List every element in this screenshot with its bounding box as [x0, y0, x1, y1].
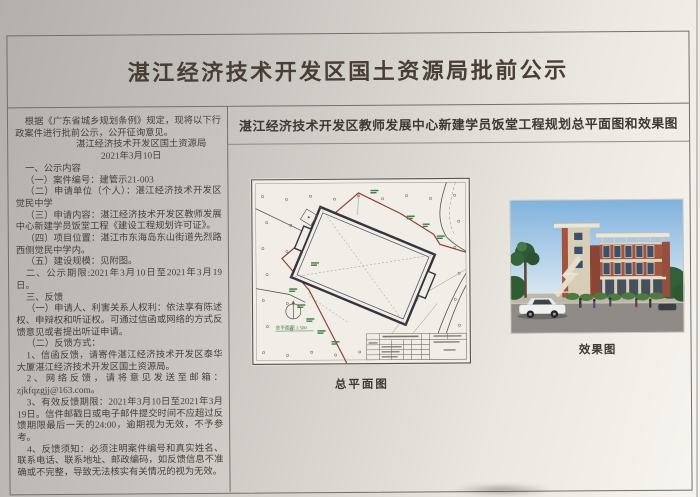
notice-paragraph: （三）申请内容：湛江经济技术开发区教师发展中心新建学员饭堂工程《建设工程规划许可…	[16, 210, 222, 235]
notice-paragraph: （二）申请单位（个人）：湛江经济技术开发区觉民中学	[15, 186, 221, 211]
site-plan-drawing: 总平面图 1:500	[250, 177, 471, 366]
drawings-panel-header: 湛江经济技术开发区教师发展中心新建学员饭堂工程规划总平面图和效果图	[228, 104, 689, 145]
drawings-panel: 湛江经济技术开发区教师发展中心新建学员饭堂工程规划总平面图和效果图	[228, 104, 692, 492]
rendered-building	[554, 223, 671, 298]
site-plan-figure: 总平面图 1:500 总平面图	[250, 177, 471, 393]
photo-shadow	[452, 484, 552, 496]
paper-edge-shadow	[696, 0, 698, 497]
notice-paragraph: （四）项目位置：湛江市东海岛东山街道先烈路西侧觉民中学内。	[16, 233, 222, 258]
notice-text-column: 根据《广东省城乡规划条例》规定，现将以下行政案件进行批前公示，公开征询意见。 湛…	[8, 107, 231, 494]
building-rendering	[510, 199, 685, 334]
notice-paragraph: 3、有效反馈期限：2021年3月10日至2021年3月19日。信件邮戳日或电子邮…	[17, 397, 223, 445]
page-title: 湛江经济技术开发区国土资源局批前公示	[128, 52, 569, 87]
rendering-caption: 效果图	[511, 341, 685, 358]
drawings-panel-title: 湛江经济技术开发区教师发展中心新建学员饭堂工程规划总平面图和效果图	[239, 113, 678, 135]
notice-paragraph: 二、公示期限:2021年3月10日至2021年3月19日。	[16, 268, 222, 293]
notice-header: 湛江经济技术开发区国土资源局批前公示	[7, 32, 688, 109]
plan-title-block	[366, 333, 466, 360]
site-plan-caption: 总平面图	[252, 375, 472, 393]
issuer-line: 湛江经济技术开发区国土资源局	[15, 139, 221, 152]
notice-paragraph: 2、网络反馈，请将意见发送至邮箱：zjkfqzgjj@163.com。	[17, 373, 223, 398]
notice-paragraph: 4、反馈须知：必须注明案件编号和真实姓名、联系电话、联系地址、邮政编码，如反馈信…	[17, 444, 223, 481]
dark-car	[658, 304, 676, 311]
notice-document: 湛江经济技术开发区国土资源局批前公示 根据《广东省城乡规划条例》规定，现将以下行…	[6, 31, 692, 496]
notice-paragraph: 1、信函反馈，请寄件湛江经济技术开发区泰华大厦湛江经济技术开发区国土资源局。	[17, 350, 223, 375]
rendering-figure: 效果图	[510, 199, 685, 358]
intro-paragraph: 根据《广东省城乡规划条例》规定，现将以下行政案件进行批前公示，公开征询意见。	[15, 116, 221, 141]
notice-paragraph: （一）申请人、利害关系人权利：依法享有陈述权、申辩权和听证权。可通过信函或网络的…	[16, 303, 222, 340]
notice-body: 根据《广东省城乡规划条例》规定，现将以下行政案件进行批前公示，公开征询意见。 湛…	[8, 104, 692, 494]
